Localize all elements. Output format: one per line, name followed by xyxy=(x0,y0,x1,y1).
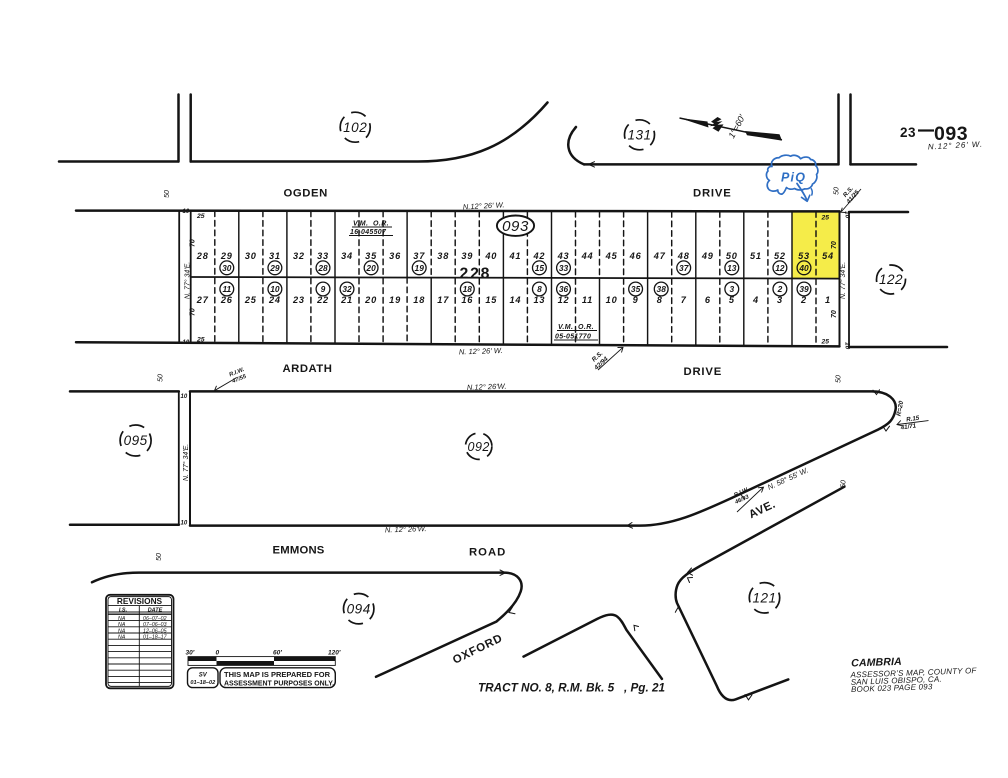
svg-text:45: 45 xyxy=(605,251,618,261)
svg-text:CAMBRIA: CAMBRIA xyxy=(851,656,902,670)
svg-text:44: 44 xyxy=(581,251,594,261)
svg-text:49: 49 xyxy=(701,251,714,261)
svg-text:1: 1 xyxy=(825,295,831,305)
svg-text:V.M. O.R.: V.M. O.R. xyxy=(558,324,594,331)
svg-text:NA: NA xyxy=(118,628,126,634)
svg-text:0: 0 xyxy=(216,650,220,657)
svg-text:25: 25 xyxy=(196,213,205,220)
svg-text:70: 70 xyxy=(831,241,838,249)
svg-text:38: 38 xyxy=(657,284,667,294)
svg-text:122: 122 xyxy=(879,272,903,287)
svg-text:18: 18 xyxy=(413,295,425,305)
svg-text:30: 30 xyxy=(245,251,257,261)
svg-text:50: 50 xyxy=(158,374,165,382)
svg-text:70: 70 xyxy=(190,239,197,247)
svg-text:25: 25 xyxy=(244,295,257,305)
svg-text:N. 77° 34′E.: N. 77° 34′E. xyxy=(839,262,847,299)
svg-text:60′: 60′ xyxy=(273,650,282,657)
svg-text:50: 50 xyxy=(164,190,171,198)
svg-text:095: 095 xyxy=(124,433,148,448)
svg-text:53: 53 xyxy=(798,251,810,261)
svg-text:N.12° 26′W.: N.12° 26′W. xyxy=(467,382,507,392)
svg-text:OGDEN: OGDEN xyxy=(284,188,328,200)
svg-text:54: 54 xyxy=(822,251,834,261)
svg-text:52: 52 xyxy=(774,251,786,261)
svg-text:6: 6 xyxy=(705,295,711,305)
svg-text:07–06–03: 07–06–03 xyxy=(143,622,167,628)
svg-text:9: 9 xyxy=(321,284,326,294)
svg-text:43: 43 xyxy=(557,251,570,261)
svg-text:25: 25 xyxy=(821,215,830,222)
svg-text:N. 77° 34′E.: N. 77° 34′E. xyxy=(184,262,192,299)
svg-text:30′: 30′ xyxy=(186,650,195,657)
svg-text:10: 10 xyxy=(181,394,188,400)
svg-text:23: 23 xyxy=(900,125,916,140)
svg-text:16-045507: 16-045507 xyxy=(350,229,387,236)
svg-text:18: 18 xyxy=(463,284,473,294)
svg-text:36: 36 xyxy=(559,284,569,294)
svg-text:11: 11 xyxy=(222,284,231,294)
svg-text:DATE: DATE xyxy=(148,608,163,614)
svg-text:4: 4 xyxy=(752,295,759,305)
svg-text:10: 10 xyxy=(183,209,190,215)
svg-text:ASSESSMENT PURPOSES ONLY.: ASSESSMENT PURPOSES ONLY. xyxy=(224,678,334,687)
svg-text:01–18–02: 01–18–02 xyxy=(190,680,216,686)
svg-text:28: 28 xyxy=(196,251,209,261)
svg-text:N. 12° 26′W.: N. 12° 26′W. xyxy=(385,524,427,534)
svg-text:70: 70 xyxy=(831,310,838,318)
svg-text:N. 12° 26′ W.: N. 12° 26′ W. xyxy=(459,346,503,357)
svg-text:12: 12 xyxy=(775,263,785,273)
svg-text:23: 23 xyxy=(292,295,305,305)
svg-text:11: 11 xyxy=(582,295,593,305)
svg-text:25: 25 xyxy=(821,339,830,346)
svg-text:28: 28 xyxy=(317,263,328,273)
svg-text:38: 38 xyxy=(437,251,449,261)
svg-text:30: 30 xyxy=(222,263,232,273)
svg-text:NA: NA xyxy=(118,635,126,641)
svg-text:19: 19 xyxy=(389,295,401,305)
svg-text:13: 13 xyxy=(727,263,737,273)
svg-text:12–06–05: 12–06–05 xyxy=(143,628,167,634)
svg-text:39: 39 xyxy=(461,251,473,261)
svg-text:15: 15 xyxy=(535,263,545,273)
svg-text:50: 50 xyxy=(156,553,163,561)
svg-text:50: 50 xyxy=(836,375,843,383)
svg-text:20: 20 xyxy=(365,263,376,273)
svg-text:34: 34 xyxy=(341,251,353,261)
svg-text:36: 36 xyxy=(389,251,401,261)
svg-text:10: 10 xyxy=(606,295,618,305)
svg-text:092: 092 xyxy=(468,440,490,454)
svg-text:33: 33 xyxy=(317,251,329,261)
svg-text:20: 20 xyxy=(364,295,377,305)
svg-text:093: 093 xyxy=(934,123,968,145)
svg-text:40: 40 xyxy=(484,251,497,261)
svg-text:DRIVE: DRIVE xyxy=(693,188,732,200)
svg-text:10: 10 xyxy=(270,284,280,294)
svg-text:120′: 120′ xyxy=(328,650,341,657)
svg-text:14: 14 xyxy=(509,295,521,305)
svg-text:093: 093 xyxy=(502,218,529,235)
svg-text:50: 50 xyxy=(726,251,738,261)
svg-text:46: 46 xyxy=(629,251,642,261)
svg-text:2: 2 xyxy=(777,284,783,294)
svg-text:32: 32 xyxy=(293,251,305,261)
svg-text:NA: NA xyxy=(118,622,126,628)
svg-text:50: 50 xyxy=(841,480,848,488)
svg-text:27: 27 xyxy=(196,295,209,305)
svg-text:19: 19 xyxy=(415,263,425,273)
svg-text:I.S.: I.S. xyxy=(119,608,128,614)
svg-text:8: 8 xyxy=(537,284,542,294)
svg-text:37: 37 xyxy=(413,251,425,261)
svg-text:29: 29 xyxy=(269,263,280,273)
svg-text:15: 15 xyxy=(485,295,497,305)
svg-text:51: 51 xyxy=(750,251,762,261)
svg-text:094: 094 xyxy=(347,601,371,616)
svg-text:N. 77° 34′E.: N. 77° 34′E. xyxy=(182,444,190,481)
svg-text:TRACT NO. 8, R.M. Bk. 5 , Pg: TRACT NO. 8, R.M. Bk. 5 , Pg. 21 xyxy=(478,681,665,695)
svg-text:50: 50 xyxy=(834,187,841,195)
svg-text:3: 3 xyxy=(729,284,734,294)
svg-text:06–07–02: 06–07–02 xyxy=(143,616,167,622)
svg-text:228: 228 xyxy=(460,265,492,282)
svg-text:32: 32 xyxy=(342,284,352,294)
svg-text:40: 40 xyxy=(798,263,809,273)
svg-text:29: 29 xyxy=(220,251,233,261)
svg-text:39: 39 xyxy=(799,284,809,294)
svg-text:37: 37 xyxy=(679,263,689,273)
svg-text:ARDATH: ARDATH xyxy=(283,363,333,375)
svg-text:REVISIONS: REVISIONS xyxy=(117,596,163,606)
svg-text:SV: SV xyxy=(199,673,208,679)
svg-text:47: 47 xyxy=(653,251,666,261)
svg-text:121: 121 xyxy=(752,590,776,605)
svg-text:10: 10 xyxy=(844,342,851,350)
svg-text:102: 102 xyxy=(343,120,367,135)
svg-text:70: 70 xyxy=(190,308,197,316)
svg-text:25: 25 xyxy=(196,337,205,344)
svg-text:48: 48 xyxy=(677,251,690,261)
svg-text:41: 41 xyxy=(508,251,521,261)
svg-text:35: 35 xyxy=(631,284,641,294)
svg-text:ROAD: ROAD xyxy=(469,547,506,559)
svg-text:31: 31 xyxy=(269,251,281,261)
svg-text:17: 17 xyxy=(437,295,449,305)
svg-text:PiQ: PiQ xyxy=(781,171,806,185)
svg-text:05-051770: 05-051770 xyxy=(555,334,591,341)
svg-text:7: 7 xyxy=(681,295,687,305)
svg-text:10: 10 xyxy=(183,340,190,346)
svg-text:33: 33 xyxy=(559,263,569,273)
svg-text:EMMONS: EMMONS xyxy=(273,545,325,557)
svg-text:01–18–17: 01–18–17 xyxy=(143,635,168,641)
svg-text:42: 42 xyxy=(532,251,545,261)
svg-text:131: 131 xyxy=(627,127,651,142)
svg-text:10: 10 xyxy=(181,521,188,527)
svg-text:DRIVE: DRIVE xyxy=(684,366,723,378)
svg-text:35: 35 xyxy=(365,251,377,261)
svg-text:V.M. O.R.: V.M. O.R. xyxy=(353,221,389,228)
svg-text:NA: NA xyxy=(118,616,126,622)
